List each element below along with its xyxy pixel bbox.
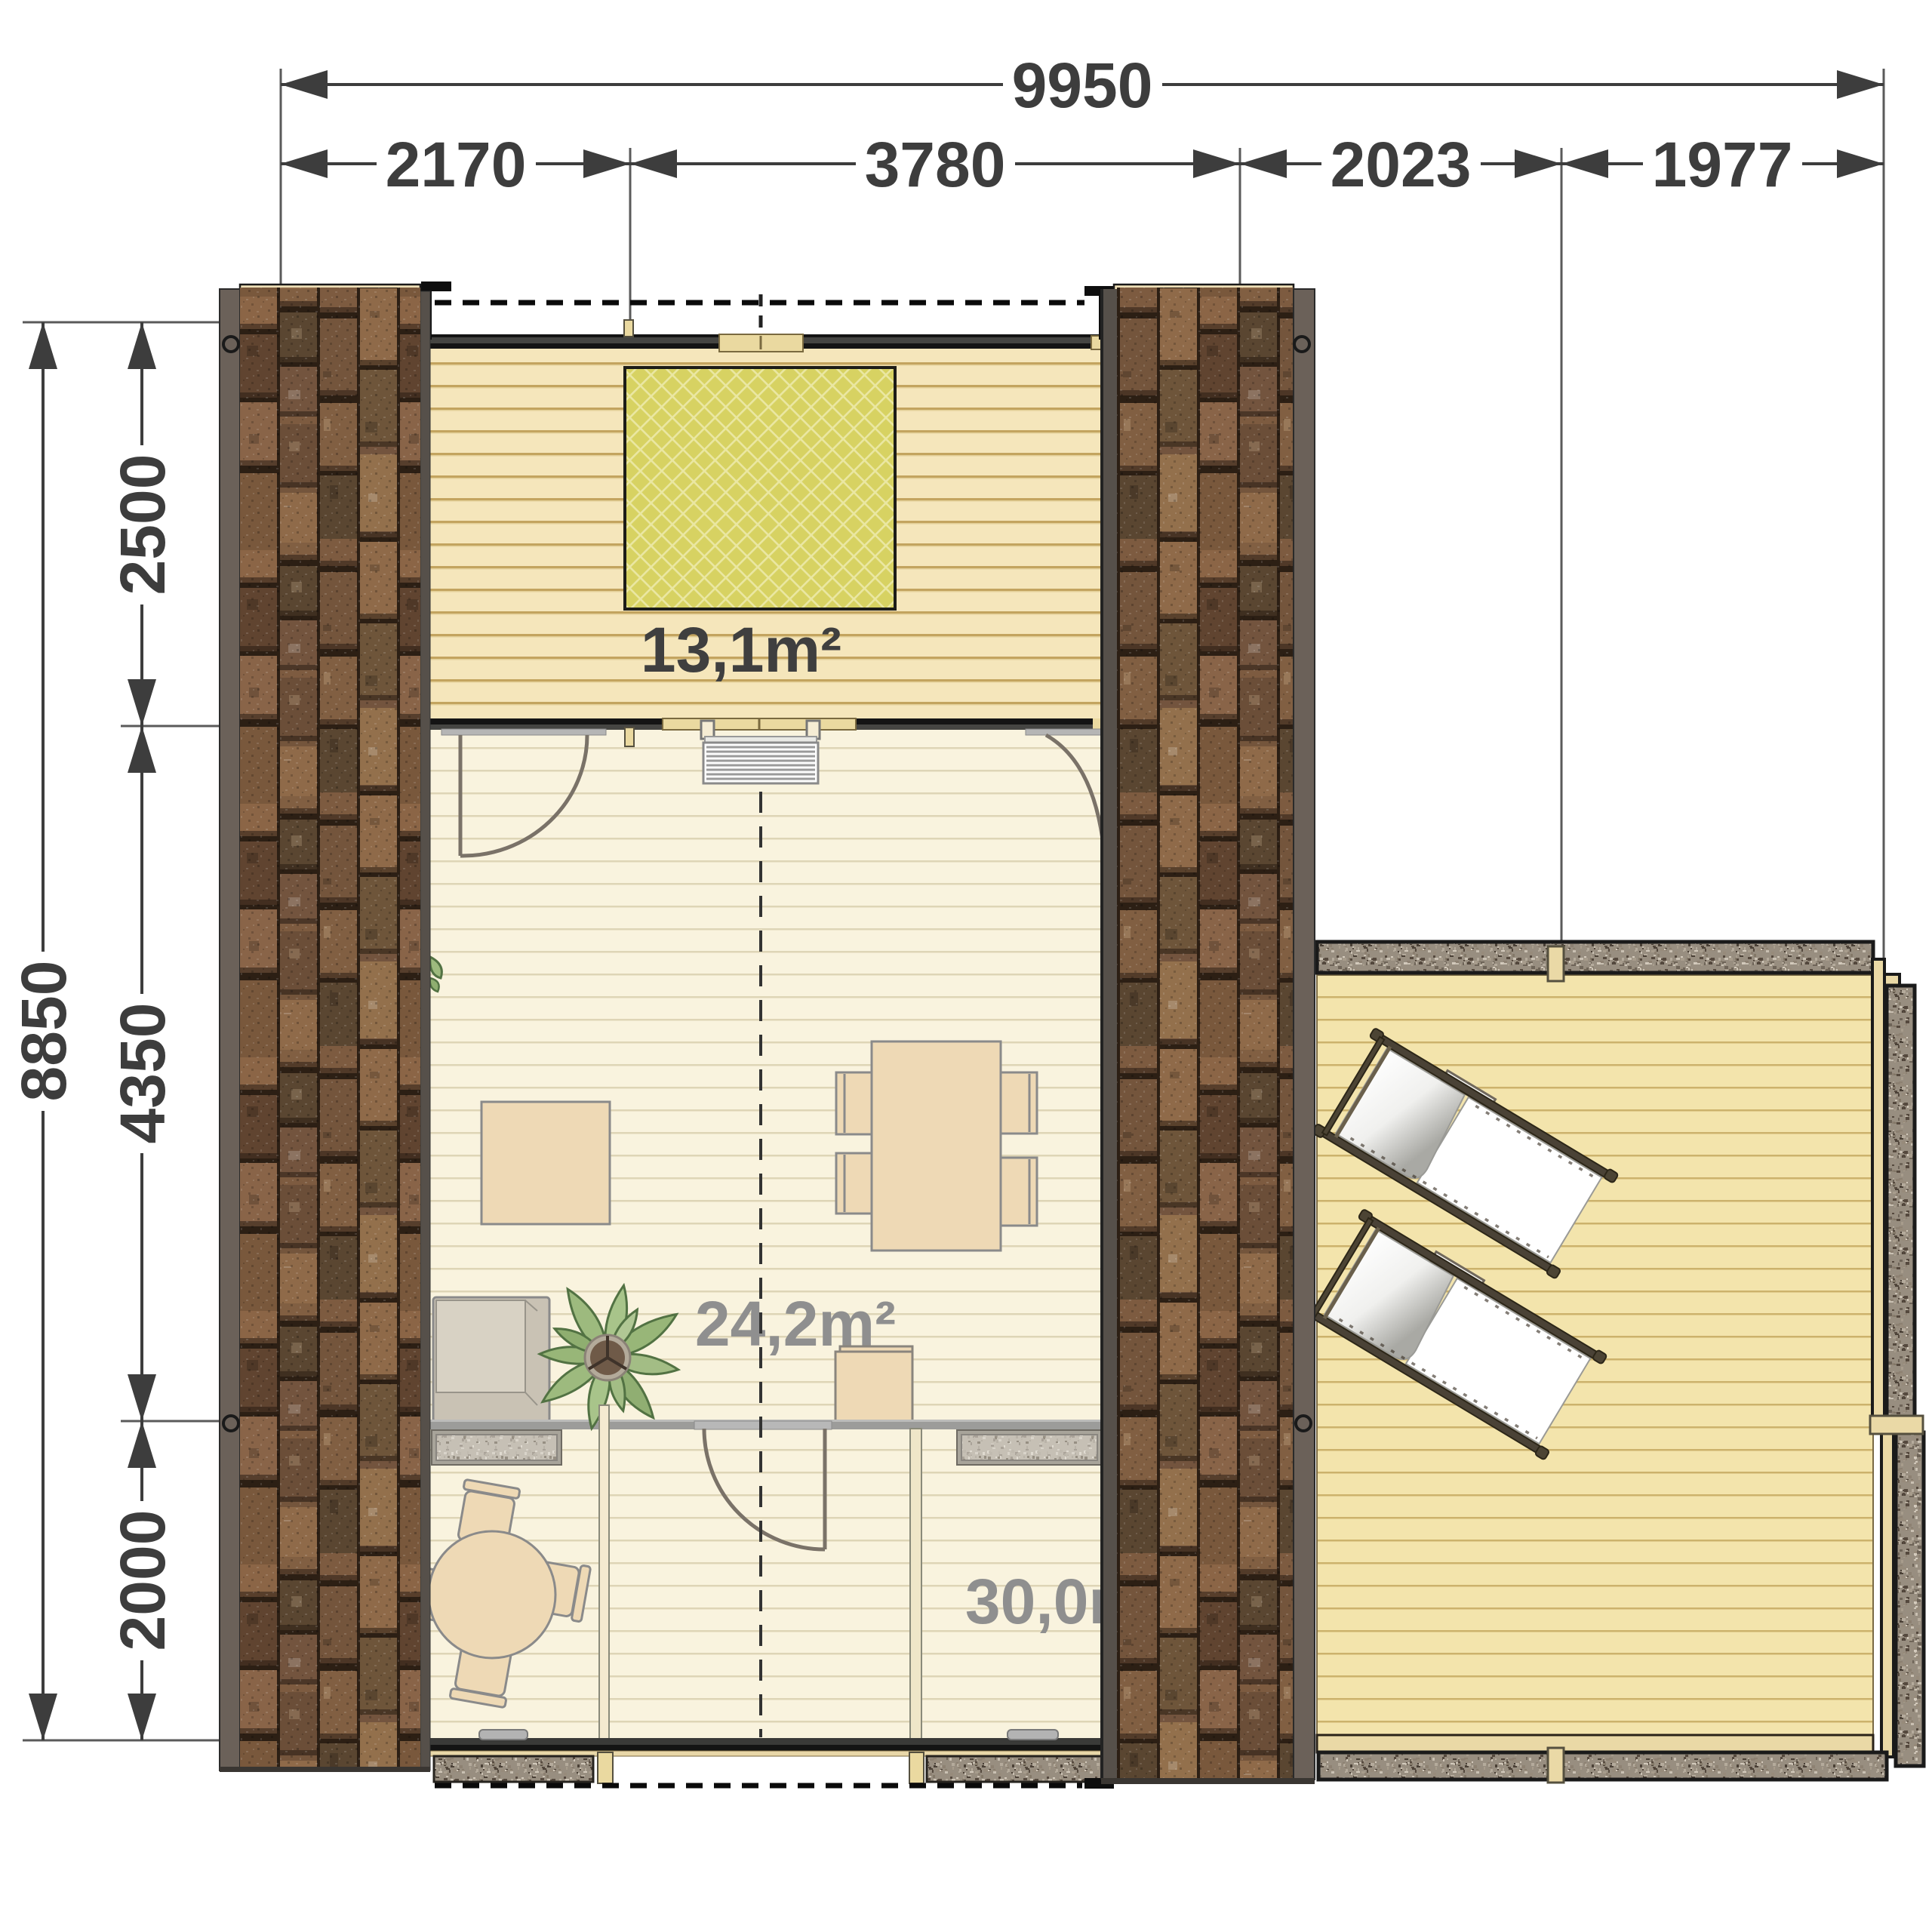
svg-text:4350: 4350: [107, 1003, 178, 1144]
svg-text:13,1m²: 13,1m²: [641, 614, 841, 685]
svg-text:3780: 3780: [865, 129, 1006, 200]
svg-text:9950: 9950: [1012, 50, 1153, 121]
svg-text:2023: 2023: [1331, 129, 1472, 200]
svg-text:2500: 2500: [107, 454, 178, 595]
svg-text:8850: 8850: [8, 961, 79, 1102]
svg-text:1977: 1977: [1652, 129, 1793, 200]
svg-text:2170: 2170: [386, 129, 527, 200]
svg-text:2000: 2000: [107, 1510, 178, 1651]
